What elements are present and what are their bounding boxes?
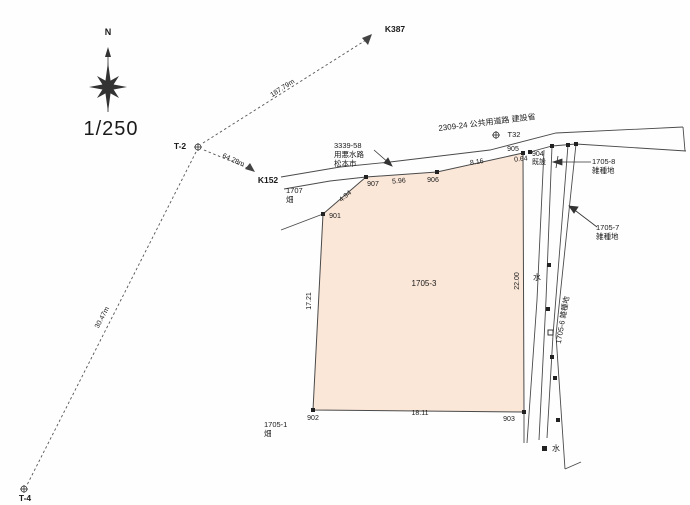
- parcel-1705-1-type: 畑: [264, 429, 287, 438]
- control-point-t32: T32: [508, 131, 521, 139]
- ditch-point-a: [547, 263, 551, 267]
- road-point-c: [574, 142, 578, 146]
- survey-point-902: [311, 408, 315, 412]
- parcel-1705-8-type: 雑種地: [592, 166, 615, 175]
- station-symbol-t2: [194, 143, 202, 151]
- parcel-1707-type: 畑: [286, 195, 303, 204]
- waterway-parcel-number: 3339-58: [334, 141, 364, 150]
- road-point-b: [566, 143, 570, 147]
- water-annotation-bottom: 水: [552, 445, 560, 453]
- control-point-k387: K387: [385, 25, 405, 33]
- road-right-edge: [683, 127, 685, 151]
- arrowhead-k387: [362, 34, 372, 45]
- survey-point-903: [522, 410, 526, 414]
- parcel-1705-8-label: 1705-8 雑種地: [592, 157, 615, 175]
- parcel-1705-1-label: 1705-1 畑: [264, 420, 287, 438]
- point-label-901: 901: [329, 213, 341, 221]
- waterway-label: 3339-58 用悪水路 松本市: [334, 141, 364, 168]
- point-label-904: 904 既設: [532, 151, 546, 167]
- point-label-903: 903: [503, 416, 515, 424]
- point-904-number: 904: [532, 151, 546, 159]
- parcel-1705-7-type: 雑種地: [596, 232, 619, 241]
- measure-left-edge: 17.21: [306, 292, 314, 310]
- ditch-point-d: [553, 376, 557, 380]
- point-label-905: 905: [507, 146, 519, 154]
- parcel-1705-7-id: 1705-7: [596, 223, 619, 232]
- survey-point-905: [521, 151, 525, 155]
- measure-right-edge: 22.00: [514, 272, 522, 290]
- parcel-1705-3-label: 1705-3: [412, 280, 437, 288]
- ditch-line-2: [539, 146, 552, 440]
- measure-bottom-edge: 18.11: [412, 410, 429, 418]
- parcel-1705-1-id: 1705-1: [264, 420, 287, 429]
- point-904-note: 既設: [532, 159, 546, 167]
- waterway-type: 用悪水路: [334, 150, 364, 159]
- north-label: N: [105, 28, 112, 36]
- station-symbol-t32: [492, 131, 500, 139]
- parcel-1707-id: 1707: [286, 186, 303, 195]
- control-point-t4: T-4: [19, 494, 31, 502]
- ditch-point-e: [556, 418, 560, 422]
- scale-label: 1/250: [83, 125, 138, 133]
- parcel-1705-7-label: 1705-7 雑種地: [596, 223, 619, 241]
- arrowhead-k152: [245, 163, 255, 172]
- ditch-point-b: [546, 307, 550, 311]
- survey-map: N 1/250 K387 187.79m T-2 K152 64.28m T-4…: [0, 0, 690, 505]
- measure-905-904: 0.64: [514, 155, 528, 164]
- point-label-907: 907: [367, 181, 379, 189]
- ditch-point-open: [548, 330, 553, 335]
- traverse-line-t2-t4: [27, 152, 196, 485]
- survey-map-canvas: [0, 0, 690, 505]
- survey-point-907: [364, 175, 368, 179]
- survey-point-901: [321, 212, 325, 216]
- parcel-1705-8-id: 1705-8: [592, 157, 615, 166]
- compass-arrowhead: [105, 47, 111, 57]
- measure-907-906: 5.96: [392, 177, 406, 186]
- water-annotation-mid: 水: [533, 274, 541, 282]
- ditch-bottom-tick: [565, 462, 581, 469]
- point-label-902: 902: [307, 415, 319, 423]
- parcel-1707-label: 1707 畑: [286, 186, 303, 204]
- ditch-point-c: [550, 355, 554, 359]
- road-point-a: [550, 144, 554, 148]
- waterway-owner: 松本市: [334, 159, 364, 168]
- boundary-ext-901: [281, 214, 323, 230]
- control-point-t2: T-2: [174, 142, 186, 150]
- survey-point-906: [435, 170, 439, 174]
- water-point-bottom: [542, 446, 547, 451]
- point-label-906: 906: [427, 177, 439, 185]
- north-compass: [89, 47, 127, 112]
- station-symbol-t4: [20, 485, 28, 493]
- control-point-k152: K152: [258, 176, 278, 184]
